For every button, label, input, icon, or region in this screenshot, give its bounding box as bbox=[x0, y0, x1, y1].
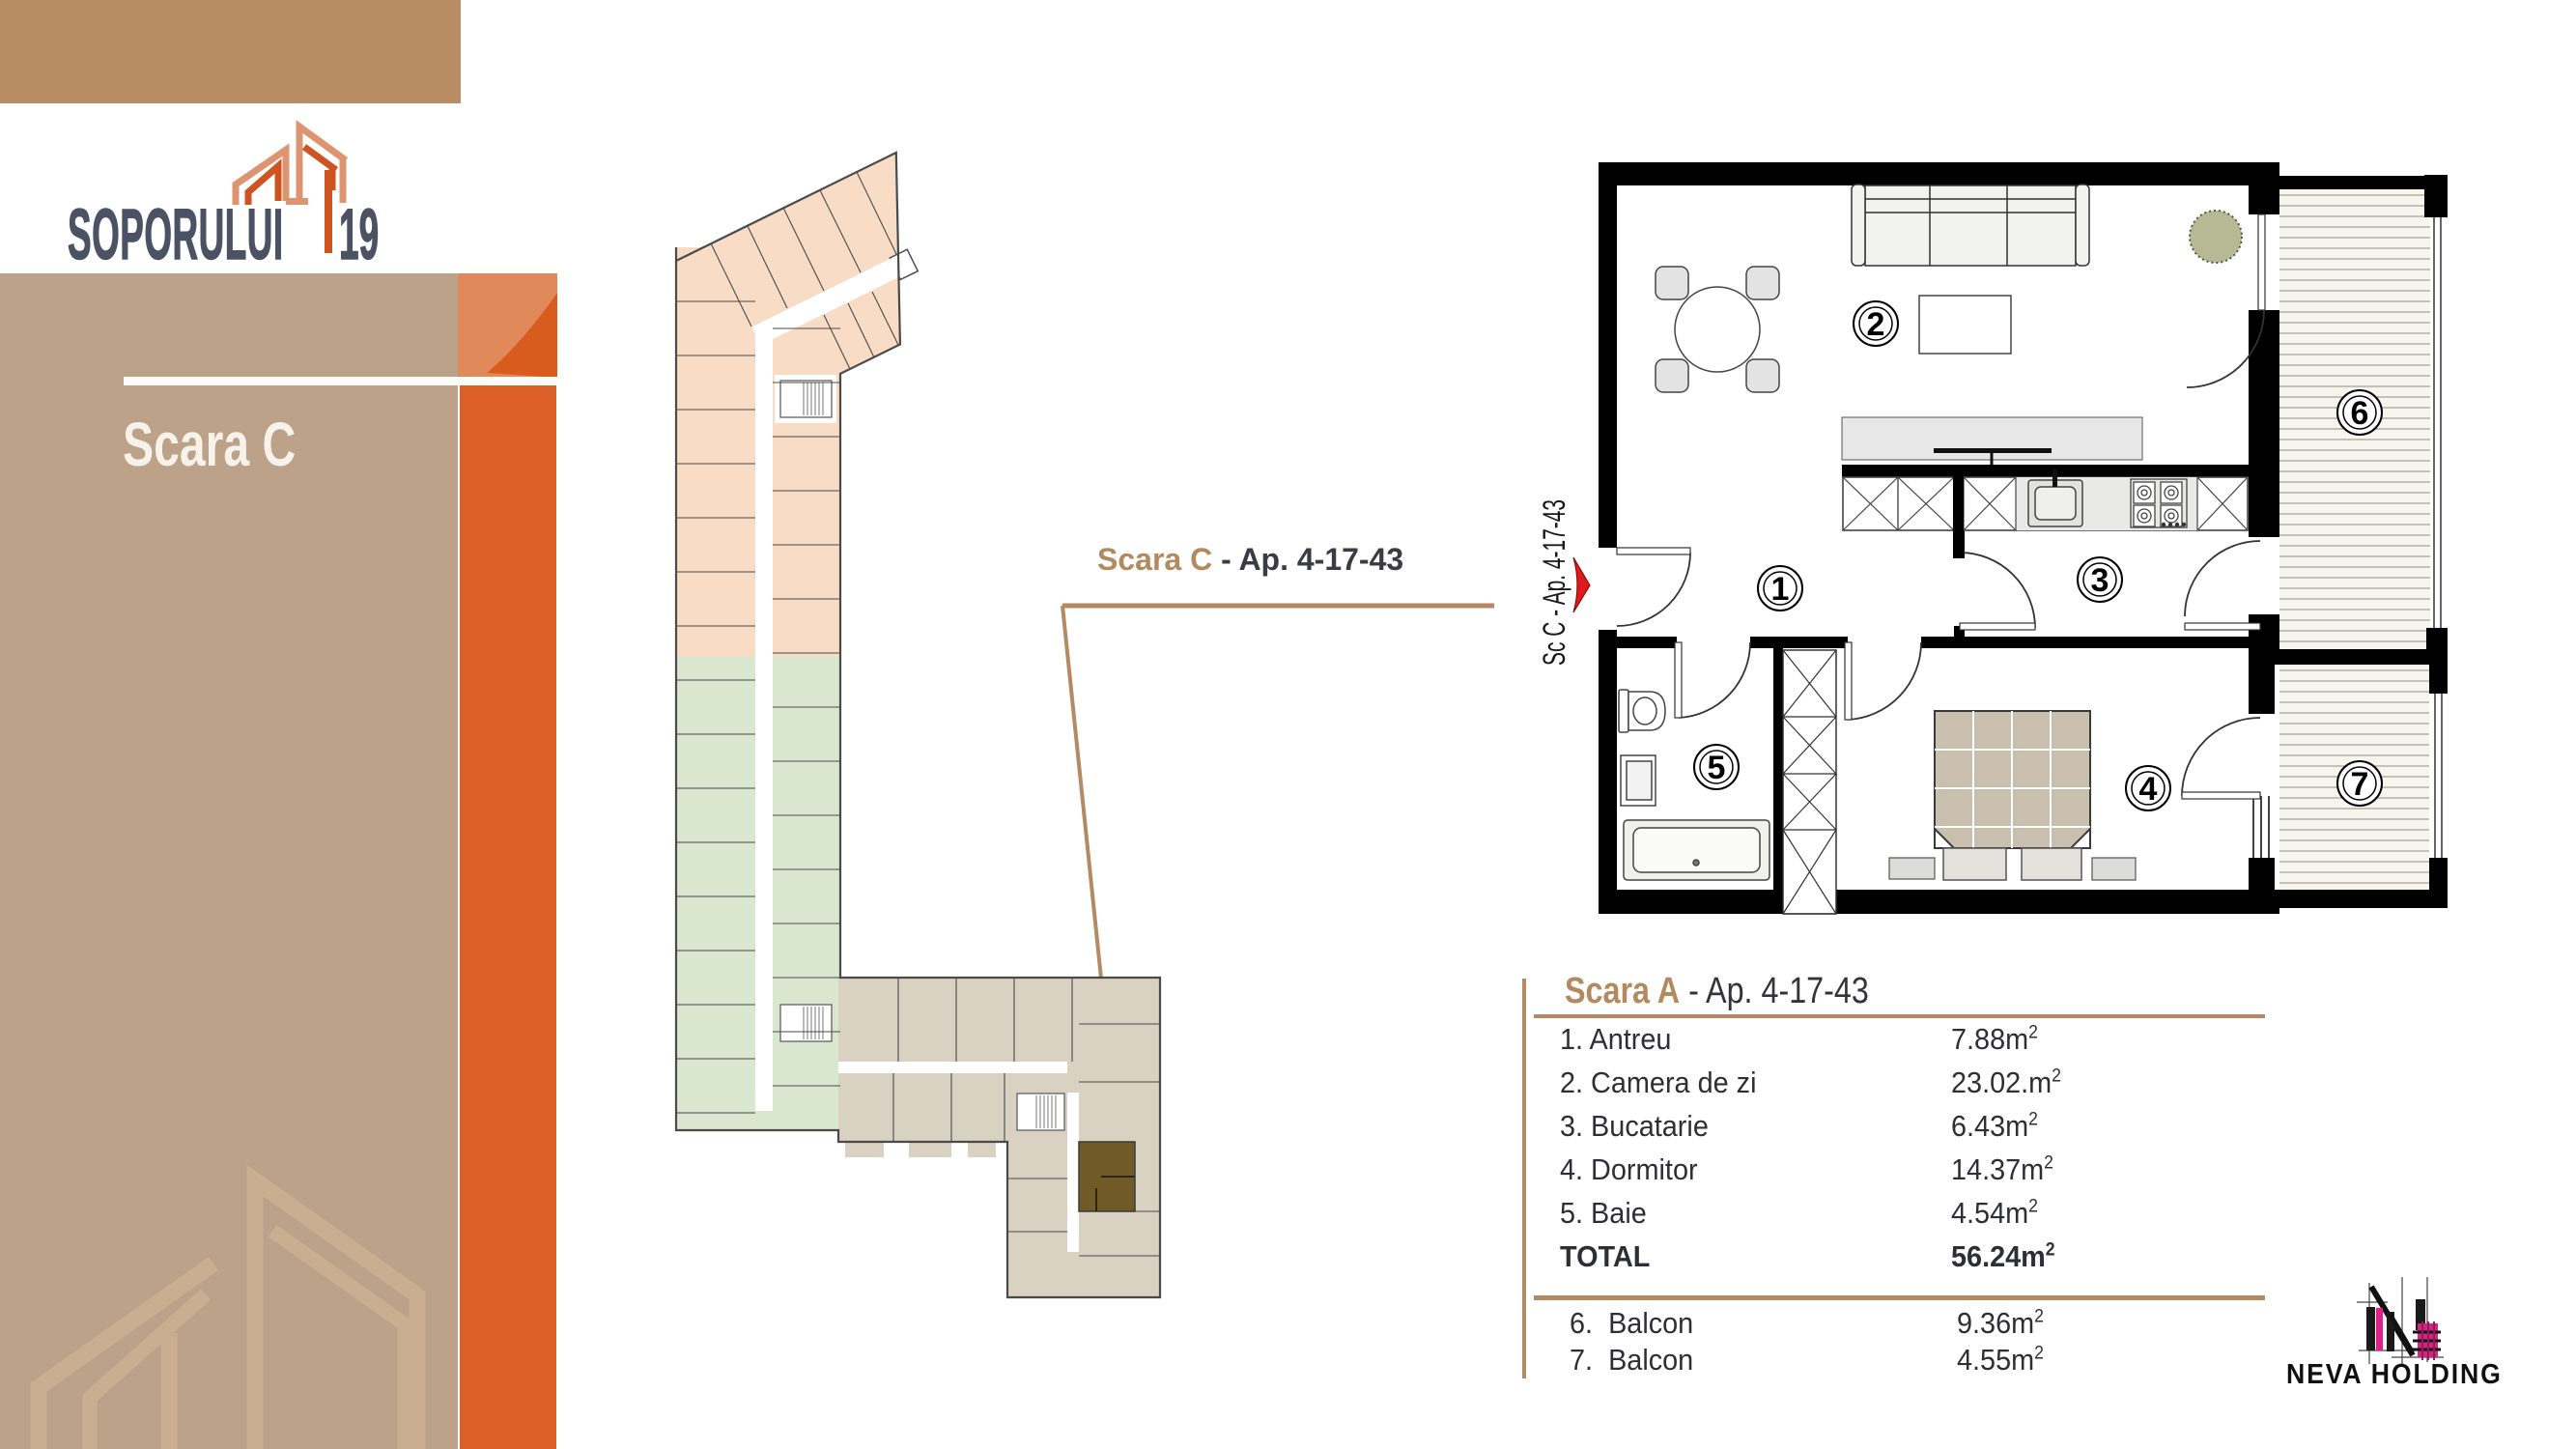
svg-text:2: 2 bbox=[1867, 306, 1885, 343]
svg-text:Sc C - Ap. 4-17-43: Sc C - Ap. 4-17-43 bbox=[1537, 499, 1571, 666]
svg-text:3: 3 bbox=[2091, 562, 2109, 599]
svg-text:5: 5 bbox=[1708, 750, 1726, 786]
svg-text:1: 1 bbox=[1771, 571, 1790, 608]
svg-text:7: 7 bbox=[2351, 766, 2369, 803]
svg-text:6: 6 bbox=[2351, 395, 2369, 432]
svg-text:4: 4 bbox=[2139, 771, 2158, 808]
